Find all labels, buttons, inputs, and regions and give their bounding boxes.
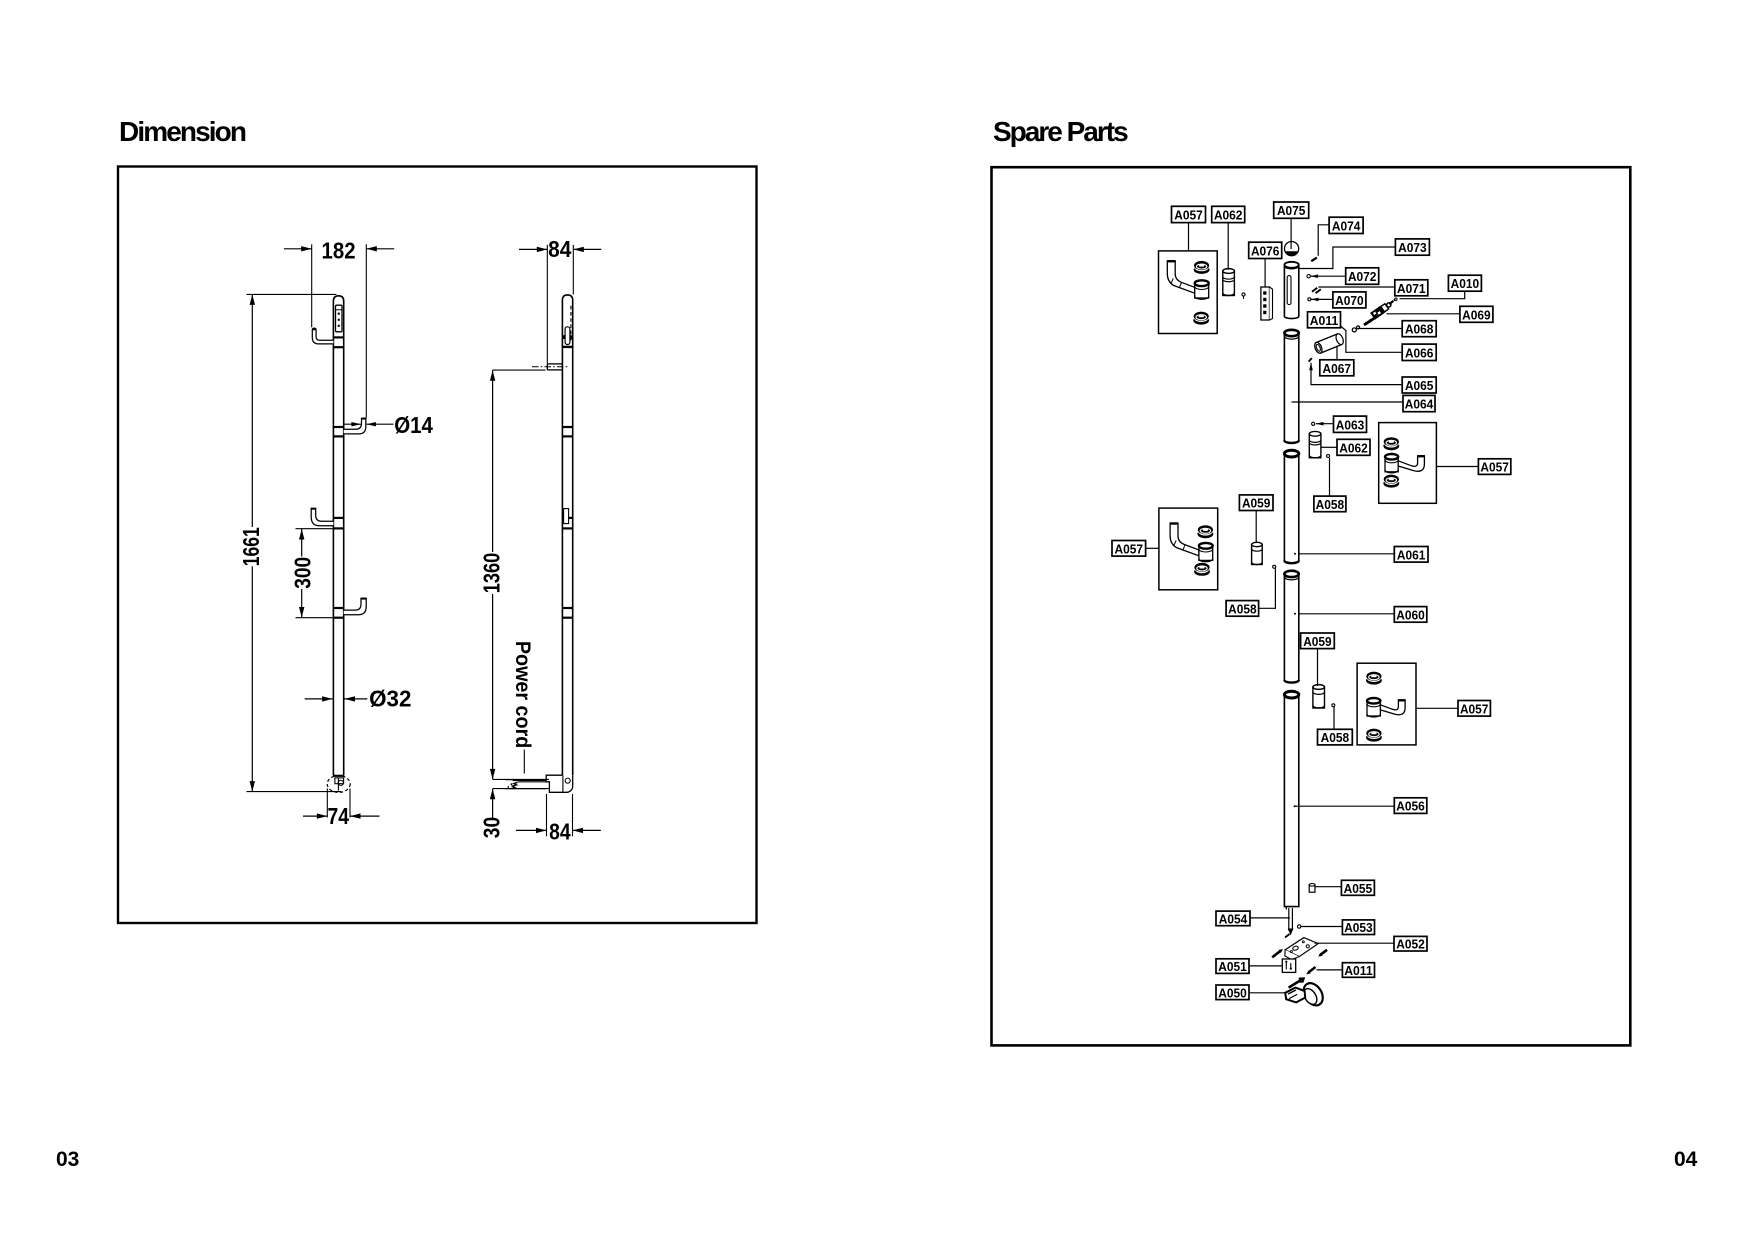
svg-text:A061: A061 xyxy=(1397,547,1426,562)
svg-text:Spare Parts: Spare Parts xyxy=(993,116,1128,147)
svg-text:A072: A072 xyxy=(1348,269,1377,284)
svg-text:A011: A011 xyxy=(1310,313,1339,328)
svg-text:A071: A071 xyxy=(1397,281,1426,296)
svg-text:A059: A059 xyxy=(1303,634,1332,649)
svg-text:74: 74 xyxy=(328,803,350,829)
svg-text:Dimension: Dimension xyxy=(119,116,246,147)
svg-text:A066: A066 xyxy=(1405,345,1434,360)
svg-text:Ø14: Ø14 xyxy=(394,412,433,438)
svg-text:A057: A057 xyxy=(1480,460,1509,475)
svg-text:A058: A058 xyxy=(1316,497,1345,512)
svg-text:A011: A011 xyxy=(1344,963,1373,978)
svg-text:A069: A069 xyxy=(1462,307,1491,322)
svg-text:A051: A051 xyxy=(1218,959,1247,974)
svg-text:30: 30 xyxy=(479,817,505,838)
svg-text:A065: A065 xyxy=(1405,378,1434,393)
svg-text:A053: A053 xyxy=(1344,920,1373,935)
svg-text:A056: A056 xyxy=(1396,799,1425,814)
svg-text:A057: A057 xyxy=(1115,541,1144,556)
svg-text:A010: A010 xyxy=(1451,276,1480,291)
svg-text:A062: A062 xyxy=(1214,207,1243,222)
svg-text:A064: A064 xyxy=(1405,397,1434,412)
svg-text:A075: A075 xyxy=(1277,203,1306,218)
svg-text:A062: A062 xyxy=(1339,440,1368,455)
svg-text:A063: A063 xyxy=(1336,417,1365,432)
svg-text:1661: 1661 xyxy=(238,527,264,566)
svg-text:A074: A074 xyxy=(1332,218,1361,233)
svg-text:182: 182 xyxy=(322,237,356,263)
svg-text:A067: A067 xyxy=(1323,361,1352,376)
svg-text:A059: A059 xyxy=(1242,496,1271,511)
svg-text:Power cord: Power cord xyxy=(511,641,535,749)
svg-text:1360: 1360 xyxy=(479,553,505,594)
svg-text:A058: A058 xyxy=(1228,601,1257,616)
svg-text:A073: A073 xyxy=(1398,240,1427,255)
svg-text:04: 04 xyxy=(1674,1148,1698,1171)
svg-text:03: 03 xyxy=(56,1148,79,1171)
svg-text:A057: A057 xyxy=(1460,701,1489,716)
svg-text:84: 84 xyxy=(549,818,571,844)
svg-text:Ø32: Ø32 xyxy=(369,685,411,711)
svg-text:A057: A057 xyxy=(1174,207,1203,222)
svg-text:A070: A070 xyxy=(1335,293,1364,308)
svg-text:300: 300 xyxy=(289,557,315,589)
svg-text:A058: A058 xyxy=(1321,730,1350,745)
svg-text:A054: A054 xyxy=(1219,911,1248,926)
svg-text:A055: A055 xyxy=(1344,881,1373,896)
svg-text:A068: A068 xyxy=(1405,322,1434,337)
svg-text:A076: A076 xyxy=(1251,243,1280,258)
svg-text:A060: A060 xyxy=(1396,607,1425,622)
svg-text:A050: A050 xyxy=(1218,985,1247,1000)
svg-text:A052: A052 xyxy=(1396,937,1425,952)
svg-text:84: 84 xyxy=(548,236,571,262)
